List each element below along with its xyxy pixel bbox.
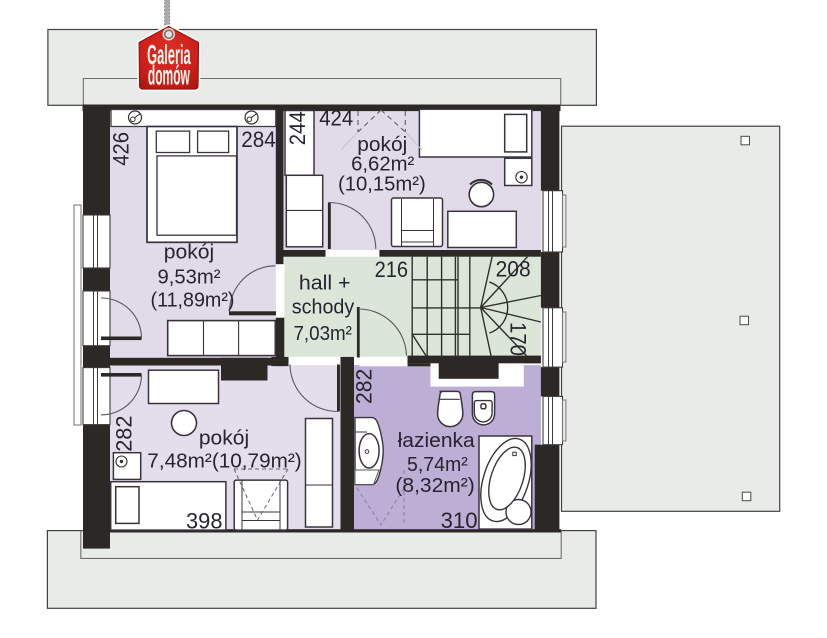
svg-text:(10,15m²): (10,15m²): [338, 174, 426, 196]
svg-text:hall +: hall +: [299, 273, 351, 295]
svg-text:284: 284: [241, 127, 275, 152]
svg-text:424: 424: [319, 105, 353, 130]
svg-text:244: 244: [285, 111, 310, 145]
svg-text:schody: schody: [292, 297, 354, 319]
svg-text:5,74m²: 5,74m²: [407, 454, 468, 476]
svg-text:6,62m²: 6,62m²: [351, 154, 415, 176]
svg-text:domów: domów: [148, 60, 190, 91]
svg-text:9,53m²: 9,53m²: [158, 267, 221, 289]
svg-text:426: 426: [109, 132, 134, 166]
svg-text:(8,32m²): (8,32m²): [395, 475, 474, 497]
svg-text:216: 216: [375, 257, 409, 282]
svg-text:łazienka: łazienka: [398, 430, 476, 452]
svg-text:(11,89m²): (11,89m²): [151, 290, 235, 312]
svg-text:7,03m²: 7,03m²: [293, 323, 352, 345]
svg-text:310: 310: [441, 508, 478, 533]
svg-text:282: 282: [112, 416, 137, 452]
svg-text:170: 170: [506, 322, 531, 356]
svg-text:208: 208: [496, 256, 531, 281]
svg-text:7,48m²(10,79m²): 7,48m²(10,79m²): [147, 450, 301, 472]
svg-text:pokój: pokój: [199, 427, 249, 449]
svg-text:398: 398: [186, 508, 223, 533]
svg-text:pokój: pokój: [164, 241, 215, 263]
svg-text:282: 282: [352, 369, 377, 404]
